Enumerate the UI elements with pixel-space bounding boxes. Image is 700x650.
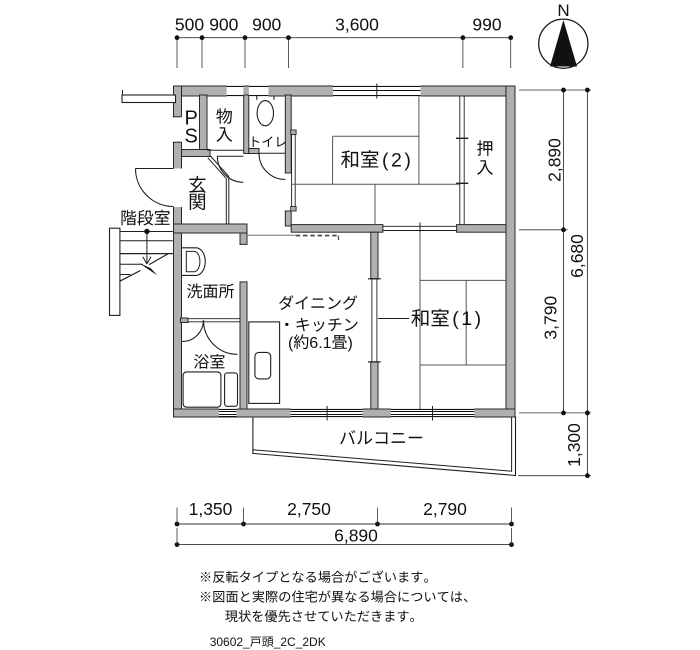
svg-text:990: 990 [472,15,501,35]
svg-text:1,300: 1,300 [564,423,584,467]
svg-text:500: 500 [175,15,204,35]
svg-text:S: S [185,126,198,148]
svg-text:900: 900 [252,15,281,35]
svg-text:30602_: 30602_ [210,635,250,649]
svg-text:2,790: 2,790 [423,499,467,519]
svg-text:6,890: 6,890 [334,526,378,546]
svg-text:(2): (2) [382,150,413,172]
svg-text:1,350: 1,350 [189,499,233,519]
svg-text:2,750: 2,750 [287,499,331,519]
svg-text:6.1: 6.1 [309,335,331,352]
svg-text:900: 900 [209,15,238,35]
svg-text:(1): (1) [452,308,483,330]
svg-text:(: ( [288,335,294,352]
svg-text:3,790: 3,790 [540,296,560,340]
svg-text:6,680: 6,680 [567,234,587,278]
svg-text:): ) [348,335,353,352]
svg-text:3,600: 3,600 [335,15,379,35]
svg-text:2,890: 2,890 [545,138,565,182]
svg-text:_2C_2DK: _2C_2DK [273,635,326,649]
svg-text:N: N [557,1,569,20]
